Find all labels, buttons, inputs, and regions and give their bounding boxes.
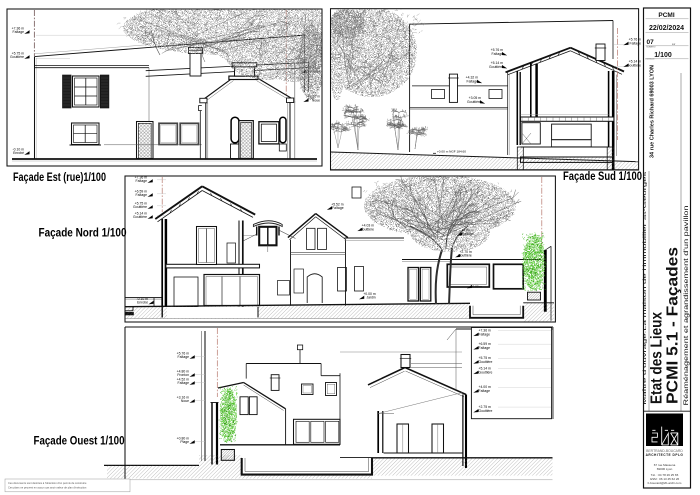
svg-text:Ces documents sont destinés à: Ces documents sont destinés à l'obtentio… [8,481,87,485]
svg-text:Gouttière: Gouttière [489,65,503,69]
svg-text:69006 Lyon: 69006 Lyon [657,467,673,471]
svg-text:Plage: Plage [180,440,189,444]
svg-text:Gouttière: Gouttière [479,370,493,374]
svg-text:Gouttière: Gouttière [479,360,493,364]
svg-text:Jardin: Jardin [366,296,375,300]
svg-text:Faîtage: Faîtage [178,355,190,359]
svg-text:Gouttière: Gouttière [627,63,641,67]
svg-text:Façade Nord 1/100: Façade Nord 1/100 [39,228,127,240]
svg-text:Faîtage: Faîtage [467,80,479,84]
svg-text:Ces plans ne peuvent en aucun: Ces plans ne peuvent en aucun cas avoir … [8,485,87,489]
svg-text:Etat des Lieux: Etat des Lieux [649,312,666,404]
svg-text:PCMI: PCMI [658,12,674,19]
svg-text:07: 07 [647,39,655,46]
svg-text:Gouttière: Gouttière [479,409,493,413]
svg-text:+0.00 m: +0.00 m [471,285,483,289]
svg-text:+0.00 m NGF 184.60: +0.00 m NGF 184.60 [437,149,466,153]
svg-text:Gouttière: Gouttière [133,205,147,209]
svg-text:Gouttière: Gouttière [133,215,147,219]
svg-text:1/100: 1/100 [654,52,672,59]
svg-text:34 rue Charles Richard 69003 L: 34 rue Charles Richard 69003 LYON [650,65,656,158]
svg-text:Faîtage: Faîtage [492,52,504,56]
svg-text:NUMERO: NUMERO [647,46,656,48]
svg-text:Gouttière: Gouttière [10,55,24,59]
svg-text:Faîtage: Faîtage [13,30,25,34]
svg-text:Gouttière: Gouttière [467,100,481,104]
svg-text:Faîtage: Faîtage [479,389,491,393]
svg-text:Enrobé: Enrobé [137,301,148,305]
svg-text:Faîtage: Faîtage [630,42,642,46]
svg-text:Faîtage: Faîtage [479,346,491,350]
svg-text:Faîtage: Faîtage [136,179,148,183]
svg-text:PCMI 5.1 - Façades: PCMI 5.1 - Façades [665,247,682,404]
svg-text:Faîtage: Faîtage [462,232,474,236]
svg-text:Façade Est (rue)1/100: Façade Est (rue)1/100 [13,170,106,184]
svg-text:b.boucard@2b-archi.com: b.boucard@2b-archi.com [648,481,682,485]
svg-text:Faîtage: Faîtage [178,381,190,385]
svg-text:Faîtage: Faîtage [136,193,148,197]
svg-text:Façade Sud 1/100: Façade Sud 1/100 [563,169,642,183]
svg-text:Maître d'ouvrage:La maison de: Maître d'ouvrage:La maison de l'immobili… [642,170,647,404]
svg-text:Enrobé: Enrobé [13,151,24,155]
svg-text:Réaménagement et agrandissemen: Réaménagement et agrandissement d'un pav… [683,205,690,405]
svg-text:22/02/2024: 22/02/2024 [649,25,684,32]
svg-text:ARCHITECTE DPLG: ARCHITECTE DPLG [646,453,684,457]
svg-text:Façade Ouest 1/100: Façade Ouest 1/100 [34,436,125,448]
svg-text:Faîtage: Faîtage [479,332,491,336]
svg-text:Faîtage: Faîtage [332,206,344,210]
svg-text:Noue: Noue [181,399,189,403]
